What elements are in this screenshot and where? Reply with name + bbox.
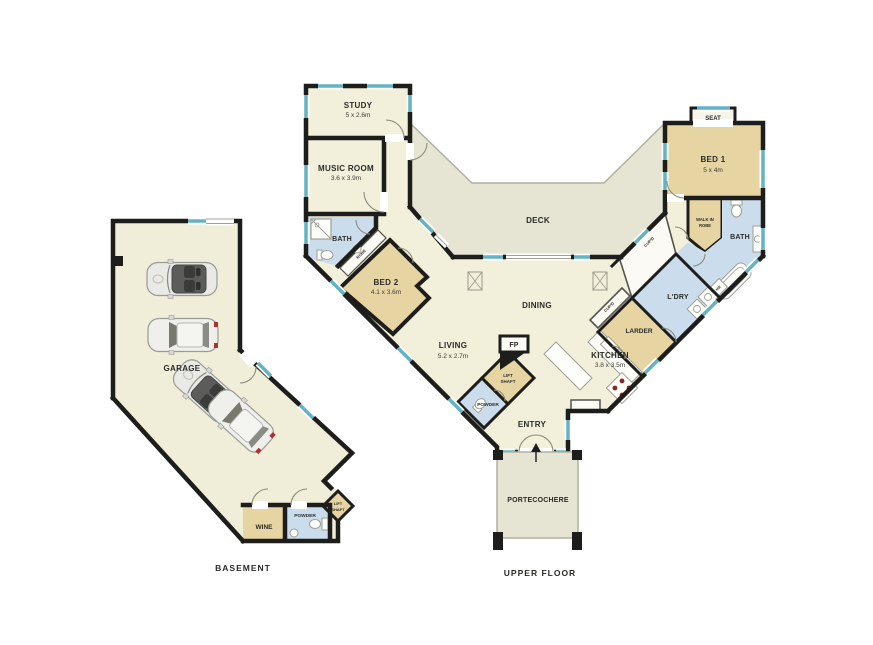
dims-bed2: 4.1 x 3.6m bbox=[371, 289, 401, 296]
label-lift-shaft-upper-1: LIFT bbox=[503, 373, 513, 378]
floor-plan-page: STUDY 5 x 2.6m MUSIC ROOM 3.6 x 3.9m BAT… bbox=[0, 0, 873, 645]
basin-icon bbox=[290, 529, 298, 537]
floor-plan-svg: STUDY 5 x 2.6m MUSIC ROOM 3.6 x 3.9m BAT… bbox=[0, 0, 873, 645]
garage-door bbox=[206, 217, 234, 226]
room-wine bbox=[243, 505, 285, 541]
label-music-room: MUSIC ROOM bbox=[318, 164, 374, 173]
label-living: LIVING bbox=[439, 341, 467, 350]
label-lift-shaft-basement-2: SHAFT bbox=[331, 507, 345, 512]
column-marker bbox=[593, 272, 607, 290]
wall-pier bbox=[113, 256, 123, 266]
car-icon bbox=[148, 316, 218, 355]
label-lift-shaft-upper-2: SHAFT bbox=[501, 379, 516, 384]
dims-bed1: 5 x 4m bbox=[703, 167, 723, 174]
upper-floor-plan: STUDY 5 x 2.6m MUSIC ROOM 3.6 x 3.9m BAT… bbox=[306, 86, 763, 578]
label-dining: DINING bbox=[522, 301, 552, 310]
label-walk-in-robe-1: WALK IN bbox=[696, 217, 714, 222]
door-gap bbox=[252, 501, 268, 509]
label-walk-in-robe-2: ROBE bbox=[699, 223, 711, 228]
label-larder: LARDER bbox=[625, 328, 652, 335]
caption-basement: BASEMENT bbox=[215, 563, 271, 573]
label-bath-left: BATH bbox=[332, 236, 352, 243]
label-deck: DECK bbox=[526, 216, 550, 225]
label-garage: GARAGE bbox=[164, 364, 201, 373]
room-portecochere bbox=[497, 452, 578, 538]
door-gap bbox=[291, 501, 307, 509]
label-laundry: L'DRY bbox=[667, 294, 689, 301]
label-bed1: BED 1 bbox=[700, 155, 725, 164]
toilet-icon bbox=[731, 200, 742, 217]
caption-upper-floor: UPPER FLOOR bbox=[504, 568, 576, 578]
shower-icon bbox=[311, 219, 331, 239]
label-lift-shaft-basement-1: LIFT bbox=[334, 501, 343, 506]
room-deck bbox=[410, 123, 665, 257]
dims-music-room: 3.6 x 3.9m bbox=[331, 175, 361, 182]
label-kitchen: KITCHEN bbox=[591, 351, 629, 360]
label-seat: SEAT bbox=[705, 116, 721, 122]
dims-kitchen: 3.8 x 3.5m bbox=[595, 362, 625, 369]
car-icon bbox=[147, 260, 217, 299]
label-bed2: BED 2 bbox=[373, 278, 398, 287]
dims-study: 5 x 2.6m bbox=[346, 112, 371, 119]
label-wine: WINE bbox=[256, 524, 274, 531]
label-fireplace: FP bbox=[509, 342, 518, 349]
label-study: STUDY bbox=[344, 101, 373, 110]
label-entry: ENTRY bbox=[518, 420, 547, 429]
label-powder-basement: POWDER bbox=[294, 513, 316, 519]
label-bath-right: BATH bbox=[730, 234, 750, 241]
toilet-icon bbox=[317, 250, 333, 260]
dims-living: 5.2 x 2.7m bbox=[438, 353, 468, 360]
label-powder-upper: POWDER bbox=[477, 402, 499, 408]
column-marker bbox=[468, 272, 482, 290]
label-portecochere: PORTECOCHERE bbox=[507, 497, 569, 504]
